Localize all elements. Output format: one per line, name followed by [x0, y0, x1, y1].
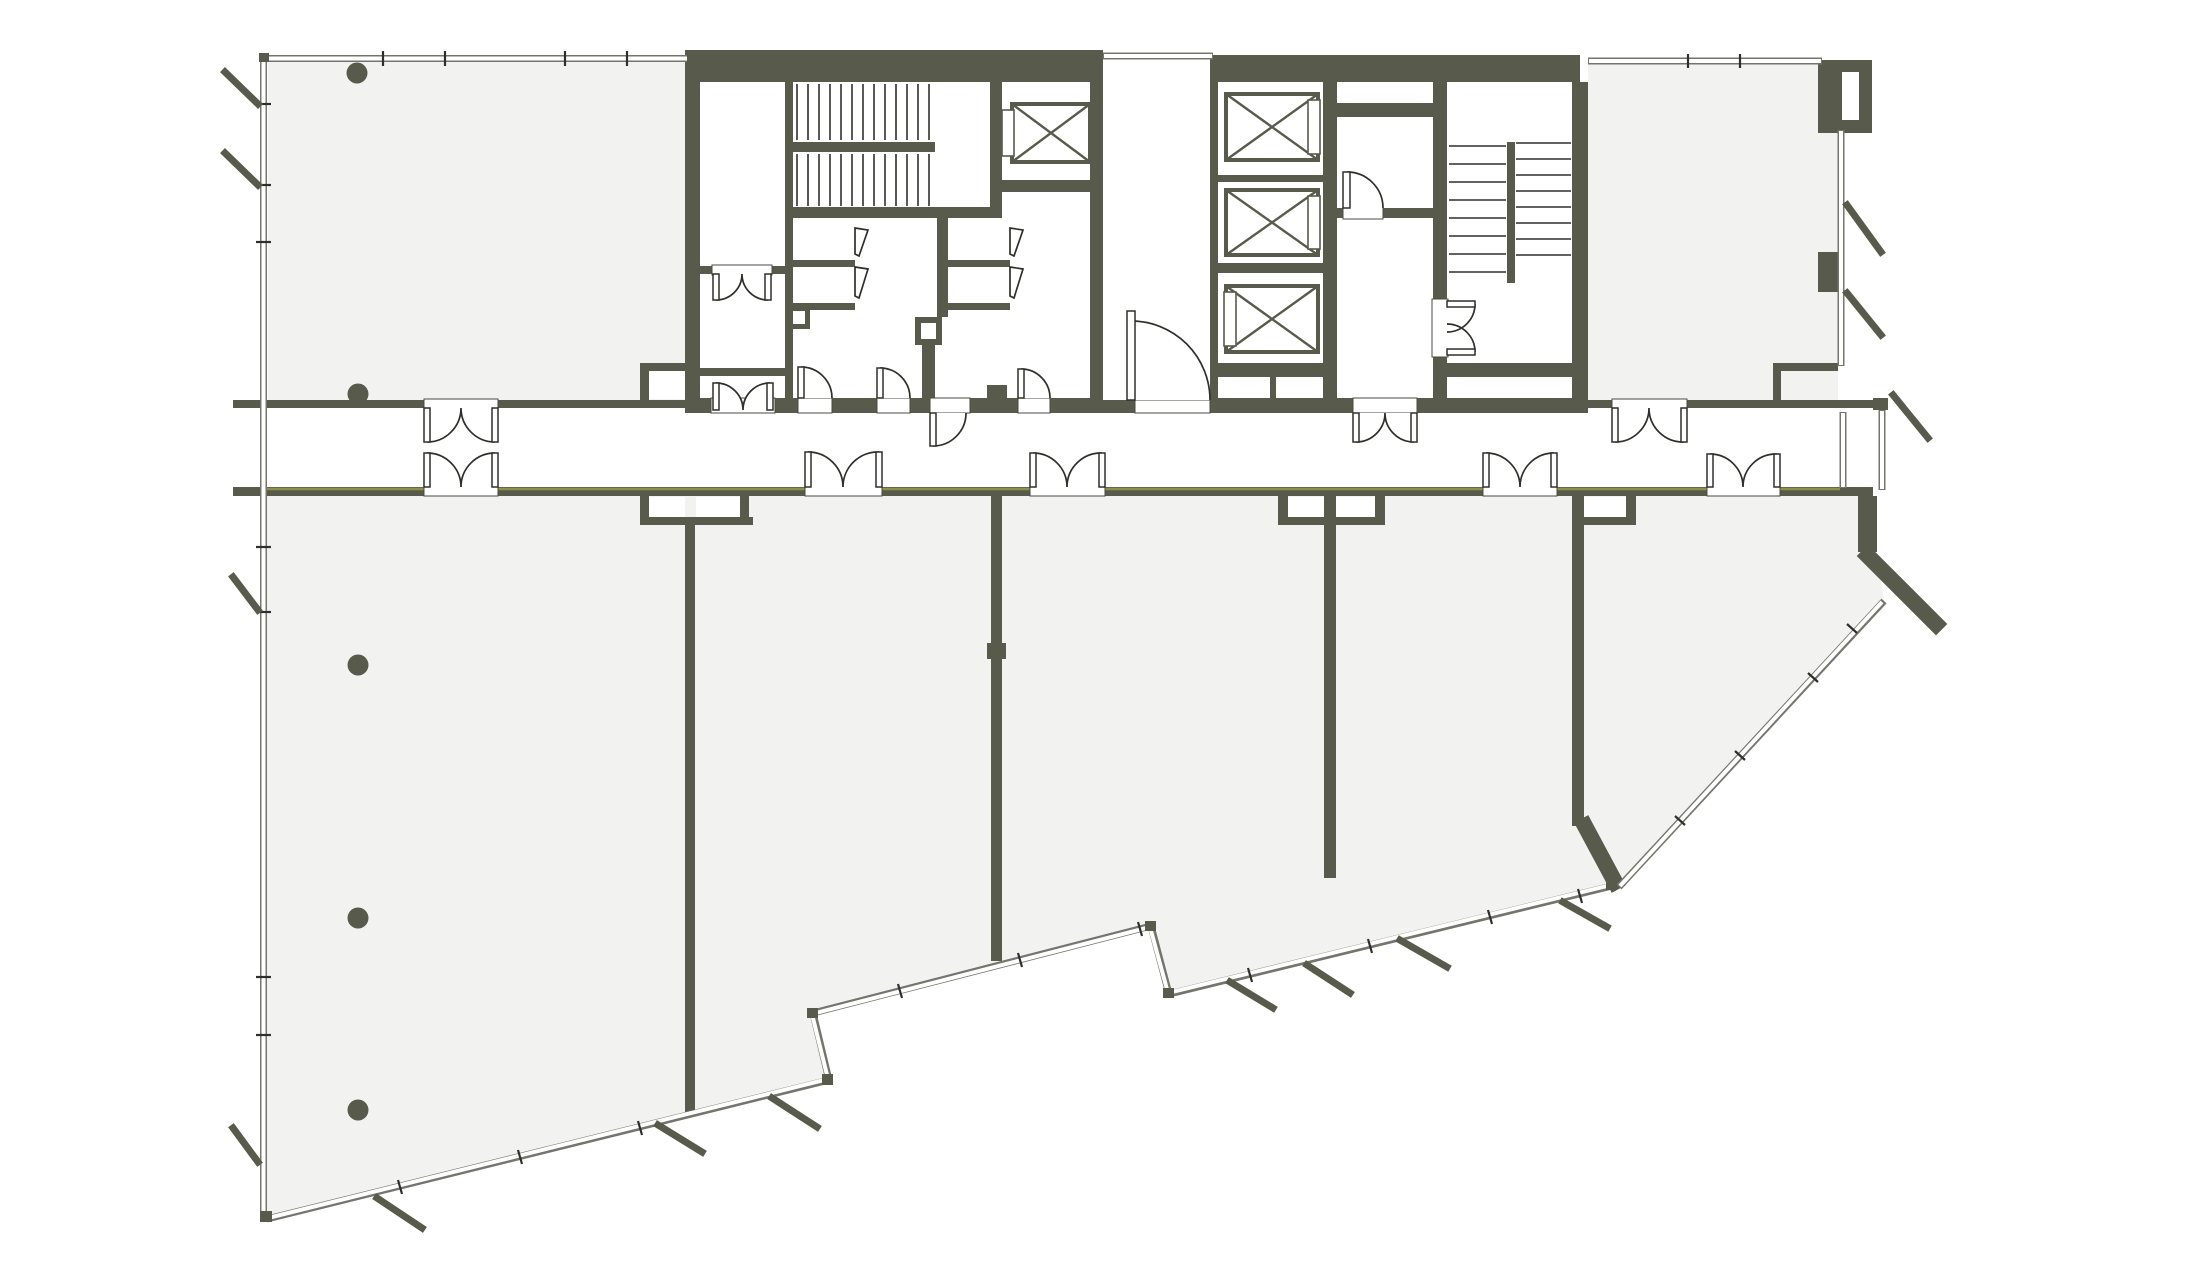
floor-plan-page — [0, 0, 2192, 1280]
column — [347, 63, 368, 84]
column — [348, 655, 369, 676]
floor-plan-drawing — [0, 0, 2192, 1280]
room-northwest — [268, 61, 685, 400]
column — [348, 908, 369, 929]
stair-east-strip — [1447, 377, 1572, 400]
elevator-4 — [1002, 104, 1090, 162]
column — [348, 1100, 369, 1121]
room-northeast — [1588, 63, 1838, 400]
column — [348, 384, 369, 405]
shaft-west-strip — [1002, 192, 1090, 208]
core-mid-rooms — [1337, 82, 1433, 400]
elevator-3 — [1224, 286, 1318, 352]
elevator-1 — [1226, 94, 1320, 160]
elevator-2 — [1226, 190, 1320, 255]
vestibule-west — [700, 82, 785, 400]
